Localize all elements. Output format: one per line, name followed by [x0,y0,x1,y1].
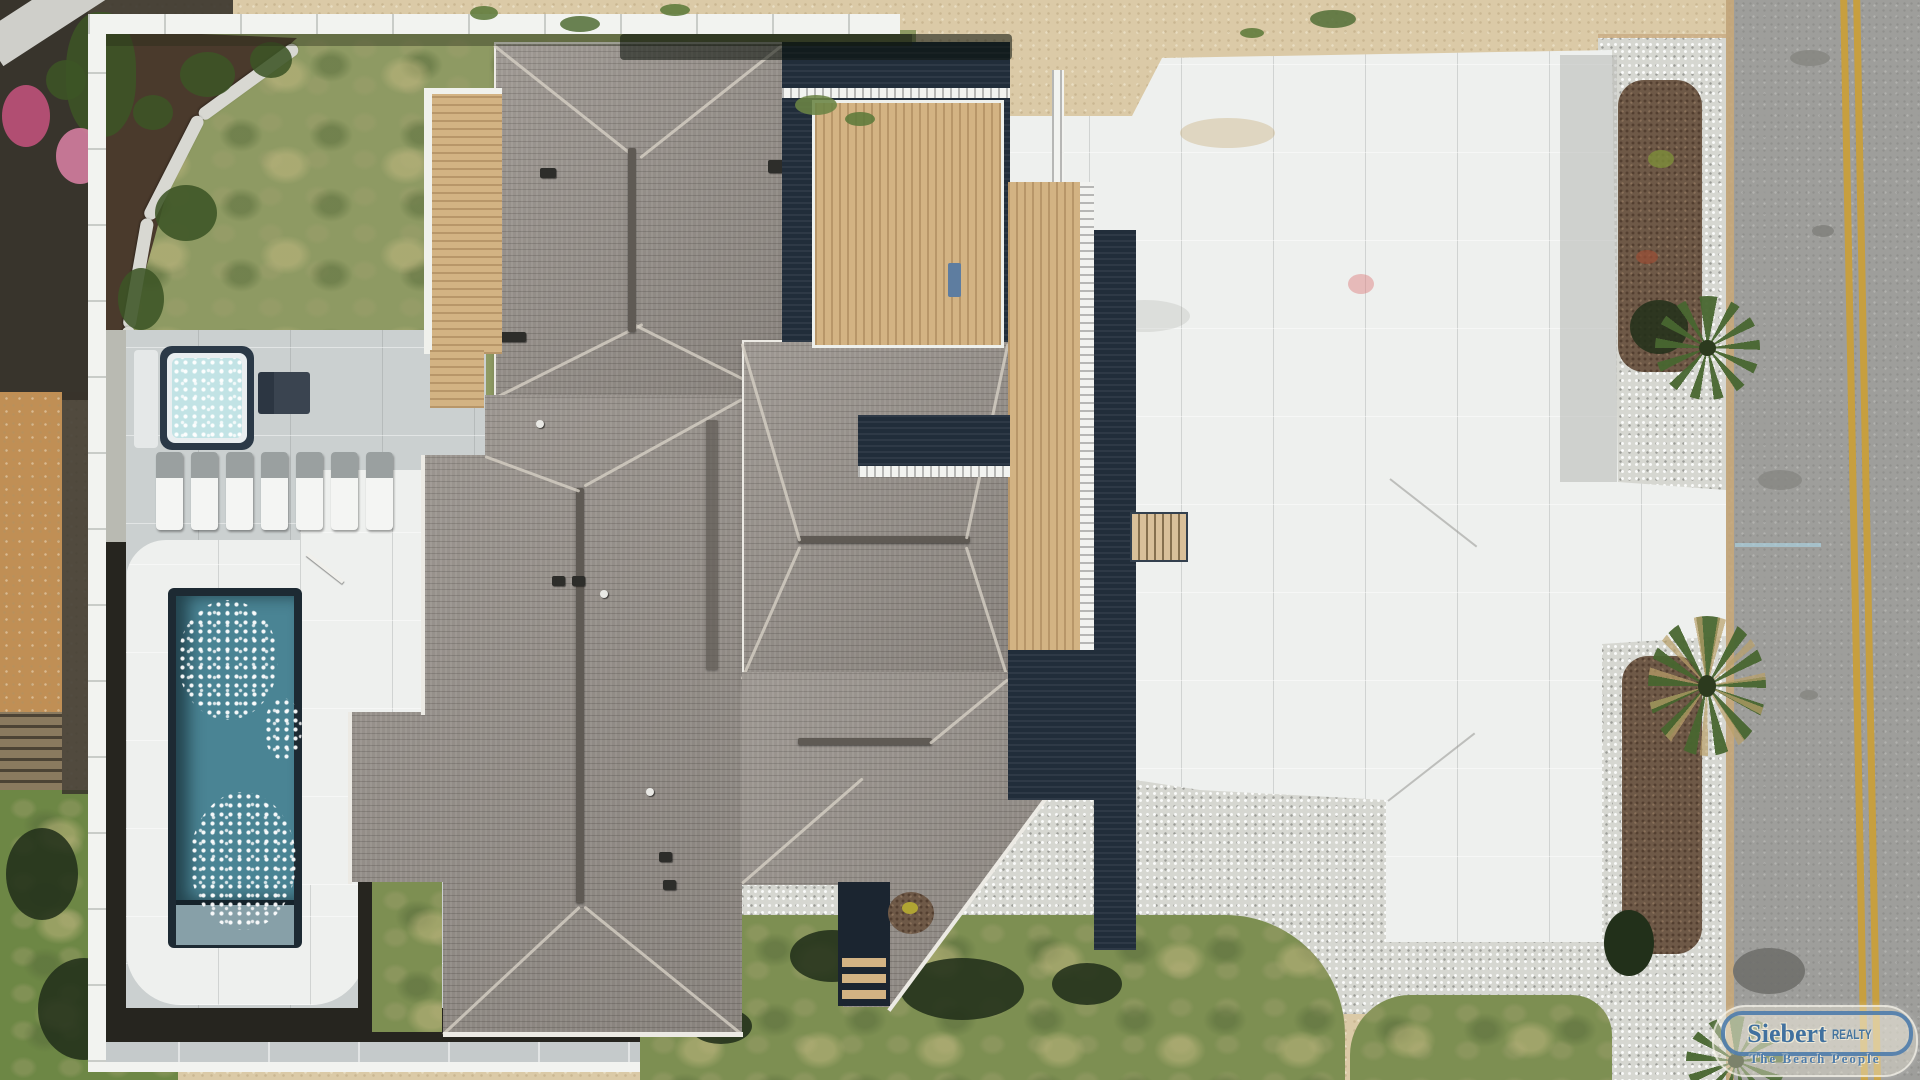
hot-tub-bench [134,350,158,448]
gravel-border-west [106,330,126,542]
deck-east-railing [1080,182,1094,652]
roof-fascia-edge [421,455,425,715]
roof-vent [663,880,676,890]
palm-tree [1648,616,1766,756]
shrub [1648,150,1674,168]
path-strip [62,392,88,794]
road-stain [1790,50,1830,66]
grass-tuft [660,4,690,16]
navy-lower-east [1008,650,1094,800]
fence-west [88,14,106,1062]
roof-ridge-vent [798,738,932,745]
shrub [133,95,173,130]
chair-back [226,452,253,478]
shrub [46,60,86,100]
road-stain [1812,225,1834,237]
driveway-chalk-mark [1348,274,1374,294]
shrub [1636,250,1658,264]
lounge-chair [261,452,288,530]
shrub [118,268,164,330]
pool-sparkle [264,698,302,760]
roof-vent [500,332,526,342]
driveway-dark-column [1560,55,1617,482]
shrub [250,42,292,78]
lounge-chair-row [156,452,408,536]
road-stain [1758,470,1802,490]
entry-porch [838,882,890,1006]
road-edge-line [1726,0,1734,1080]
lounge-chair [156,452,183,530]
road-chalk-mark [1735,543,1821,547]
chair-back [156,452,183,478]
grass-tuft [560,16,600,32]
watermark-brand-suffix: REALTY [1832,1026,1872,1042]
grass-pocket [372,882,442,1032]
balcony-railing [858,466,1010,477]
mulch-border-east [358,880,372,1010]
roof-fascia-edge [348,712,352,884]
roof-ridge-vent [576,488,584,903]
siebert-realty-watermark: Siebert REALTY The Beach People [1712,1005,1918,1077]
navy-balcony [858,415,1010,471]
porch-step [842,974,886,983]
chair-back [296,452,323,478]
hot-tub-water [172,358,242,438]
driveway-stain [1180,118,1275,148]
chair-back [261,452,288,478]
pool-equipment-box [258,372,310,414]
pool-sparkle [190,792,296,930]
hot-tub [160,346,254,450]
stairs-to-driveway [1130,512,1188,562]
lounge-chair [191,452,218,530]
porch-step [842,958,886,967]
roof-pipe [600,590,608,598]
roof-ridge-vent [628,148,636,332]
yucca-plant [1604,910,1654,976]
chair-back [331,452,358,478]
lounge-chair [331,452,358,530]
grass-tuft [470,6,498,20]
roof-vent [540,168,556,178]
deck-northeast [812,100,1004,348]
deck-east-walkway [1008,182,1080,650]
lounge-chair [226,452,253,530]
navy-siding-east [1094,230,1136,950]
roof-pipe [646,788,654,796]
asphalt-road [1726,0,1920,1080]
house-shadow-north [620,34,1012,60]
porch-plant [902,902,918,914]
grass-tuft [1310,10,1356,28]
roof-ridge-vent [798,536,970,543]
chair-back [191,452,218,478]
grass-tuft [845,112,875,126]
watermark-brand: Siebert [1747,1019,1826,1049]
lounge-chair [366,452,393,530]
roof-pipe [536,420,544,428]
blue-object [948,263,961,297]
palm-shadow-on-road [1733,948,1805,994]
flower-bush-pink [2,85,50,147]
watermark-pill: Siebert REALTY [1721,1011,1913,1056]
shrub [180,52,235,97]
deck-landing [430,350,484,408]
shrub [155,185,217,241]
boardwalk [0,712,62,794]
roof-fascia-edge [443,1032,743,1037]
roof-vent [659,852,672,862]
grass-bottom-right [1350,995,1612,1080]
chair-back [366,452,393,478]
gravel-path [0,392,62,718]
deck-west-strip [424,88,502,354]
grass-tuft [1240,28,1264,38]
porch-step [842,990,886,999]
aerial-photo: Siebert REALTY The Beach People [0,0,1920,1080]
roof-vent [552,576,565,586]
deck-railing [1052,70,1064,182]
mulch-border-west [106,540,126,1008]
lounge-chair [296,452,323,530]
roof-vent [572,576,585,586]
roof-valley [706,420,718,670]
pool-sparkle [178,600,278,720]
road-stain [1800,690,1818,700]
plant-shadow [1052,963,1122,1005]
gravel-top-border [1598,34,1726,38]
bush [6,828,78,920]
palm-tree [1655,296,1760,400]
grass-tuft [795,95,837,115]
watermark-tagline: The Beach People [1714,1051,1916,1067]
